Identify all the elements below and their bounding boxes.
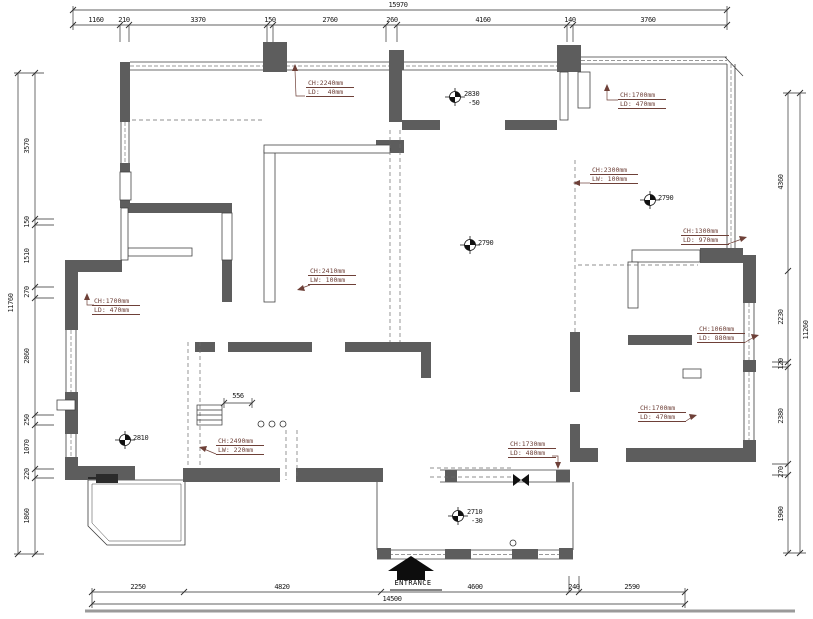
dim-right-seg-0: 4360 <box>777 165 785 199</box>
entrance-label: ENTRANCE <box>384 579 442 587</box>
level-value-3: 2810 <box>133 434 148 442</box>
dim-right-seg-4: 270 <box>777 455 785 489</box>
dim-left-seg-0: 3570 <box>23 129 31 163</box>
dim-bottom-seg-4: 2590 <box>618 583 646 591</box>
stairs-icon <box>197 405 222 425</box>
ch-sub: LD: 470mm <box>638 413 686 422</box>
ceiling-label-2: CH:2300mm LW: 100mm <box>590 166 638 184</box>
ch-sub: LW: 100mm <box>308 276 356 285</box>
level-value-4: 2710 <box>467 508 482 516</box>
dim-left-seg-2: 1510 <box>23 239 31 273</box>
ceiling-label-3: CH:1300mm LD: 970mm <box>681 227 729 245</box>
ceiling-label-0: CH:2240mm LD: 40mm <box>306 79 354 97</box>
ch-value: CH:1730mm <box>508 440 556 449</box>
ceiling-label-5: CH:1700mm LD: 470mm <box>92 297 140 315</box>
entrance-arrow-icon <box>388 556 434 580</box>
stair-width-dim: 556 <box>224 392 252 400</box>
dim-left-seg-8: 1860 <box>23 499 31 533</box>
dim-top-seg-6: 4160 <box>469 16 497 24</box>
dim-right-seg-5: 1900 <box>777 497 785 531</box>
ch-value: CH:2410mm <box>308 267 356 276</box>
level-value-1: 2790 <box>658 194 673 202</box>
ch-value: CH:1700mm <box>638 404 686 413</box>
level-offset-0: -50 <box>468 99 479 107</box>
ch-sub: LW: 100mm <box>590 175 638 184</box>
level-value-0: 2830 <box>464 90 479 98</box>
ch-value: CH:1700mm <box>618 91 666 100</box>
dim-top-seg-8: 3760 <box>634 16 662 24</box>
dim-right-seg-1: 2230 <box>777 300 785 334</box>
dim-top-seg-0: 1160 <box>82 16 110 24</box>
dim-right-seg-3: 2380 <box>777 399 785 433</box>
ceiling-label-8: CH:2490mm LW: 220mm <box>216 437 264 455</box>
ch-value: CH:1300mm <box>681 227 729 236</box>
dim-bottom-total: 14500 <box>372 595 412 603</box>
ch-sub: LD: 470mm <box>92 306 140 315</box>
dim-left-seg-4: 2860 <box>23 339 31 373</box>
ceiling-label-4: CH:2410mm LW: 100mm <box>308 267 356 285</box>
dim-bottom-seg-2: 4600 <box>461 583 489 591</box>
dim-top-seg-4: 2760 <box>316 16 344 24</box>
dim-right-seg-2: 120 <box>777 347 785 381</box>
dim-left-seg-7: 220 <box>23 457 31 491</box>
dim-left-seg-3: 270 <box>23 275 31 309</box>
ch-sub: LW: 220mm <box>216 446 264 455</box>
ch-sub: LD: 40mm <box>306 88 354 97</box>
dim-right-total: 11260 <box>802 313 810 347</box>
dim-bottom-seg-3: 240 <box>560 583 588 591</box>
dim-left-seg-1: 150 <box>23 205 31 239</box>
dim-top-seg-2: 3370 <box>184 16 212 24</box>
dim-top-seg-5: 260 <box>378 16 406 24</box>
ch-sub: LD: 970mm <box>681 236 729 245</box>
ch-sub: LD: 880mm <box>697 334 745 343</box>
dim-bottom-seg-1: 4820 <box>268 583 296 591</box>
floorplan-canvas: 15970 1160 210 3370 150 2760 260 4160 14… <box>0 0 813 619</box>
level-offset-4: -30 <box>471 517 482 525</box>
ceiling-label-1: CH:1700mm LD: 470mm <box>618 91 666 109</box>
ch-value: CH:1060mm <box>697 325 745 334</box>
door-contact-icon <box>513 474 529 486</box>
ceiling-label-9: CH:1730mm LD: 480mm <box>508 440 556 458</box>
ch-sub: LD: 470mm <box>618 100 666 109</box>
walls <box>57 42 756 559</box>
ch-value: CH:2240mm <box>306 79 354 88</box>
dim-bottom-seg-0: 2250 <box>124 583 152 591</box>
dim-top-seg-3: 150 <box>256 16 284 24</box>
ch-value: CH:1700mm <box>92 297 140 306</box>
ceiling-label-7: CH:1700mm LD: 470mm <box>638 404 686 422</box>
ch-value: CH:2490mm <box>216 437 264 446</box>
level-value-2: 2790 <box>478 239 493 247</box>
dim-left-total: 11760 <box>7 286 15 320</box>
ceiling-label-6: CH:1060mm LD: 880mm <box>697 325 745 343</box>
ch-sub: LD: 480mm <box>508 449 556 458</box>
dim-top-total: 15970 <box>378 1 418 9</box>
ch-value: CH:2300mm <box>590 166 638 175</box>
dim-top-seg-7: 140 <box>556 16 584 24</box>
dim-top-seg-1: 210 <box>110 16 138 24</box>
